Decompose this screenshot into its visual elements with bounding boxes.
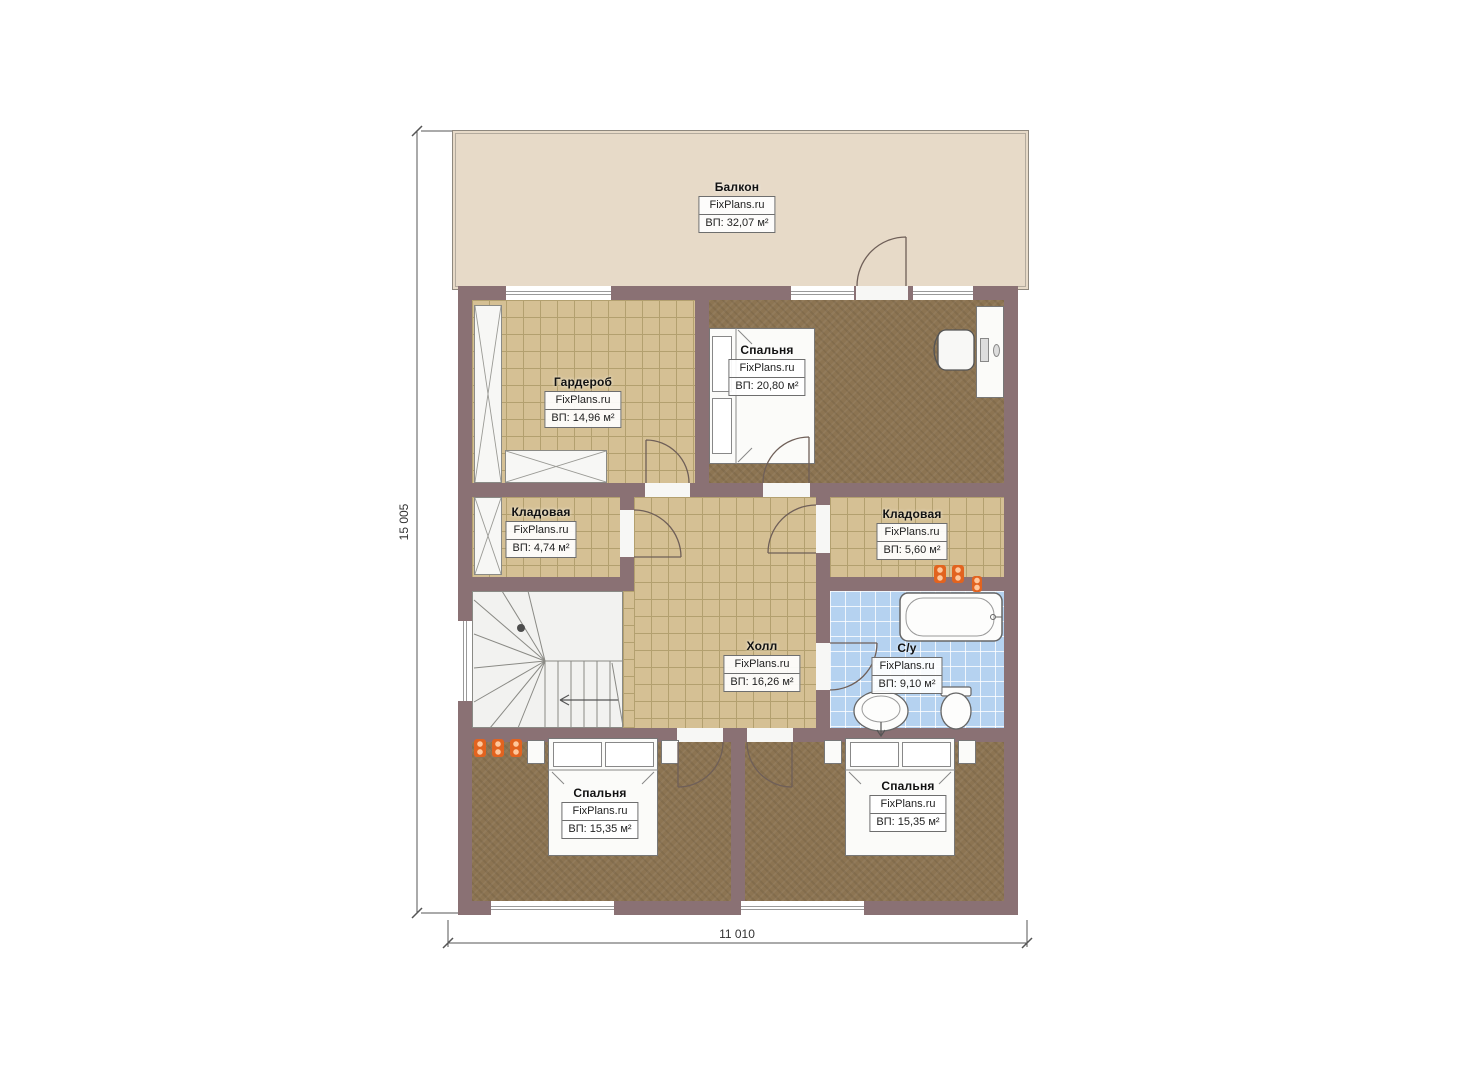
door-gap-bedroom-top [763,483,810,497]
room-name: Кладовая [876,507,947,521]
room-name: С/у [871,641,942,655]
room-label-bedroom-bl: Спальня FixPlans.ru ВП: 15,35 м² [561,786,638,839]
room-area: ВП: 15,35 м² [870,813,945,831]
room-area: ВП: 14,96 м² [545,409,620,427]
outlet-symbol [492,739,504,757]
pillow [605,742,654,767]
room-label-bedroom-top: Спальня FixPlans.ru ВП: 20,80 м² [728,343,805,396]
dimension-width-label: 11 010 [719,927,755,941]
door-gap-bathroom [816,643,830,690]
room-area: ВП: 32,07 м² [699,214,774,232]
door-gap-balcony [856,286,908,300]
room-area: ВП: 9,10 м² [872,675,941,693]
hall-floor [634,497,816,728]
pillow [712,398,732,454]
door-gap-storage-right [816,505,830,553]
outlet-symbol [474,739,486,757]
room-area: ВП: 15,35 м² [562,820,637,838]
room-label-bathroom: С/у FixPlans.ru ВП: 9,10 м² [871,641,942,694]
window-top-bedroom-left [790,286,855,300]
window-left-stairs [458,620,472,702]
nightstand [527,740,545,764]
pillow [553,742,602,767]
brand-watermark: FixPlans.ru [699,197,774,214]
door-gap-storage-left [620,510,634,557]
pillow [850,742,899,767]
nightstand [958,740,976,764]
room-area: ВП: 5,60 м² [877,541,946,559]
brand-watermark: FixPlans.ru [506,522,575,539]
door-gap-bedroom-br [747,728,793,742]
hall-floor-strip [623,591,634,728]
room-label-storage-left: Кладовая FixPlans.ru ВП: 4,74 м² [505,505,576,558]
mouse [993,344,1000,357]
brand-watermark: FixPlans.ru [724,656,799,673]
storage-left-closet [474,497,502,575]
nightstand [824,740,842,764]
window-top-bedroom-right [912,286,974,300]
room-name: Спальня [728,343,805,357]
brand-watermark: FixPlans.ru [872,658,941,675]
room-area: ВП: 4,74 м² [506,539,575,557]
outlet-symbol [952,565,964,583]
room-label-storage-right: Кладовая FixPlans.ru ВП: 5,60 м² [876,507,947,560]
staircase-area [472,591,623,728]
door-gap-bedroom-bl [677,728,723,742]
floor-plan-canvas: 15 005 11 010 Балкон FixPlans.ru ВП: 32,… [0,0,1474,1080]
room-name: Кладовая [505,505,576,519]
window-bottom-right [740,901,865,915]
room-label-balcony: Балкон FixPlans.ru ВП: 32,07 м² [698,180,775,233]
nightstand [661,740,679,764]
brand-watermark: FixPlans.ru [562,803,637,820]
room-name: Гардероб [544,375,621,389]
room-name: Холл [723,639,800,653]
room-name: Балкон [698,180,775,194]
window-bottom-left [490,901,615,915]
room-name: Спальня [869,779,946,793]
room-name: Спальня [561,786,638,800]
brand-watermark: FixPlans.ru [545,392,620,409]
wardrobe-closet-left [474,305,502,483]
outlet-symbol [510,739,522,757]
keyboard [980,338,989,362]
room-area: ВП: 16,26 м² [724,673,799,691]
wardrobe-closet-bottom [505,450,607,483]
brand-watermark: FixPlans.ru [870,796,945,813]
room-area: ВП: 20,80 м² [729,377,804,395]
brand-watermark: FixPlans.ru [877,524,946,541]
pillow [902,742,951,767]
brand-watermark: FixPlans.ru [729,360,804,377]
window-top-wardrobe [505,286,612,300]
door-gap-wardrobe [645,483,690,497]
room-label-hall: Холл FixPlans.ru ВП: 16,26 м² [723,639,800,692]
outlet-symbol [934,565,946,583]
outlet-symbol [972,576,982,592]
room-label-bedroom-br: Спальня FixPlans.ru ВП: 15,35 м² [869,779,946,832]
room-label-wardrobe: Гардероб FixPlans.ru ВП: 14,96 м² [544,375,621,428]
dimension-height-label: 15 005 [397,503,411,540]
